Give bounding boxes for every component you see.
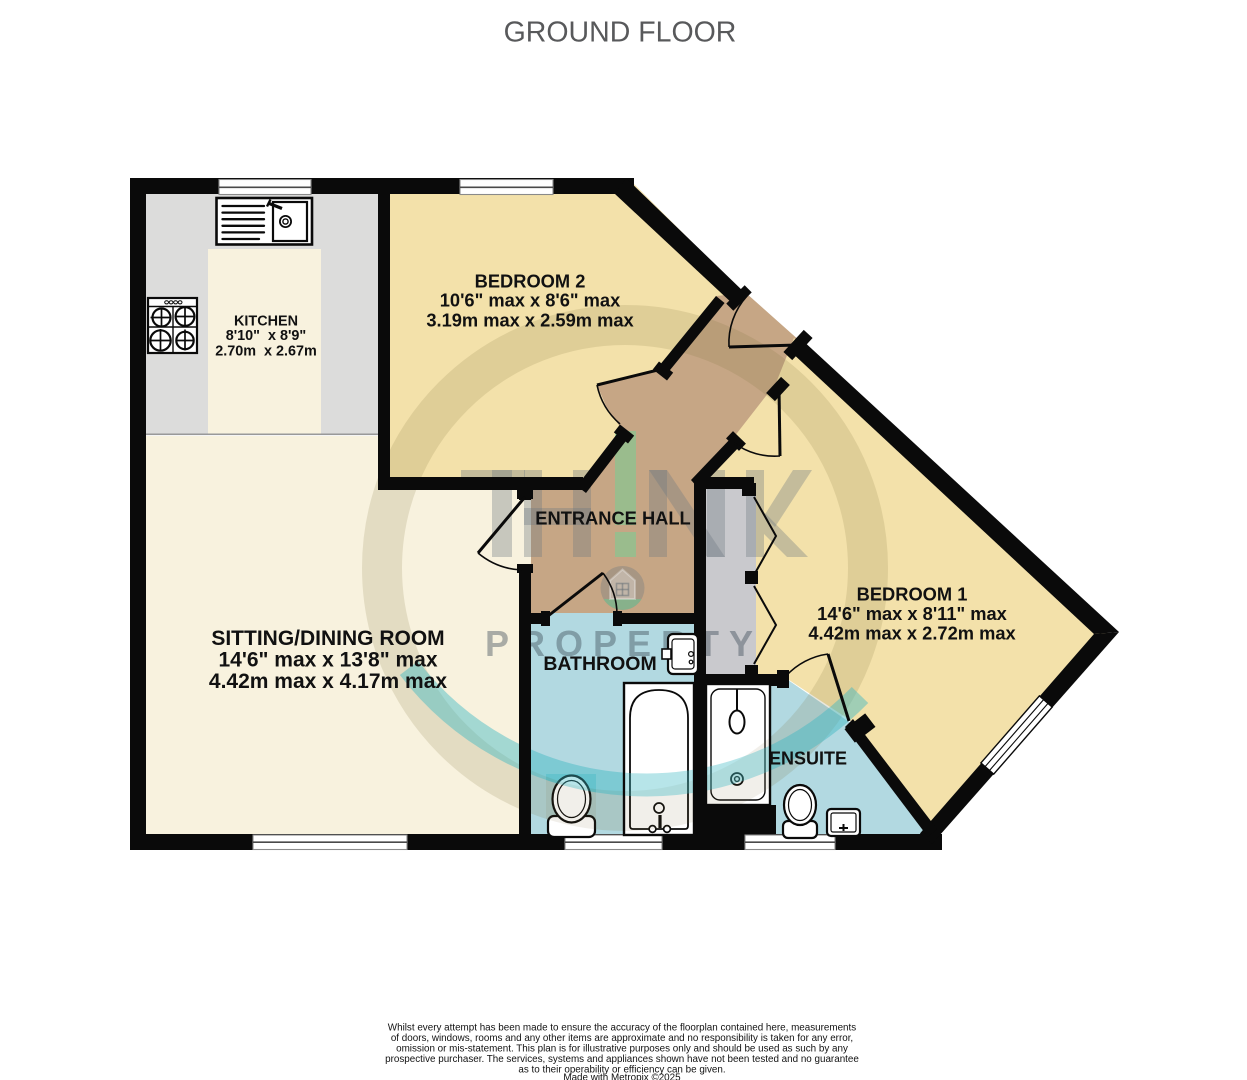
svg-text:GROUND FLOOR: GROUND FLOOR: [504, 17, 737, 49]
svg-text:omission or mis-statement. Thi: omission or mis-statement. This plan is …: [396, 1044, 848, 1055]
svg-text:4.42m max x 2.72m max: 4.42m max x 2.72m max: [808, 623, 1016, 644]
svg-text:8'10" x 8'9": 8'10" x 8'9": [226, 328, 307, 344]
svg-text:Made with Metropix ©2025: Made with Metropix ©2025: [563, 1072, 681, 1080]
svg-text:of doors, windows, rooms and a: of doors, windows, rooms and any other i…: [391, 1033, 853, 1044]
svg-text:ENTRANCE HALL: ENTRANCE HALL: [535, 508, 690, 529]
svg-text:BATHROOM: BATHROOM: [543, 653, 656, 675]
svg-text:14'6" max x 13'8" max: 14'6" max x 13'8" max: [218, 649, 437, 672]
svg-text:3.19m max x 2.59m max: 3.19m max x 2.59m max: [426, 310, 634, 331]
svg-text:10'6" max x 8'6" max: 10'6" max x 8'6" max: [440, 290, 621, 311]
svg-text:4.42m max x 4.17m max: 4.42m max x 4.17m max: [209, 670, 447, 693]
svg-text:14'6" max x 8'11" max: 14'6" max x 8'11" max: [817, 603, 1008, 624]
svg-text:Whilst every attempt has been: Whilst every attempt has been made to en…: [388, 1023, 856, 1034]
svg-text:ENSUITE: ENSUITE: [769, 748, 847, 768]
svg-text:2.70m x 2.67m: 2.70m x 2.67m: [215, 344, 317, 360]
svg-text:SITTING/DINING ROOM: SITTING/DINING ROOM: [211, 627, 444, 650]
svg-text:BEDROOM 1: BEDROOM 1: [857, 584, 968, 605]
svg-text:KITCHEN: KITCHEN: [234, 313, 298, 329]
svg-text:BEDROOM 2: BEDROOM 2: [475, 271, 586, 292]
